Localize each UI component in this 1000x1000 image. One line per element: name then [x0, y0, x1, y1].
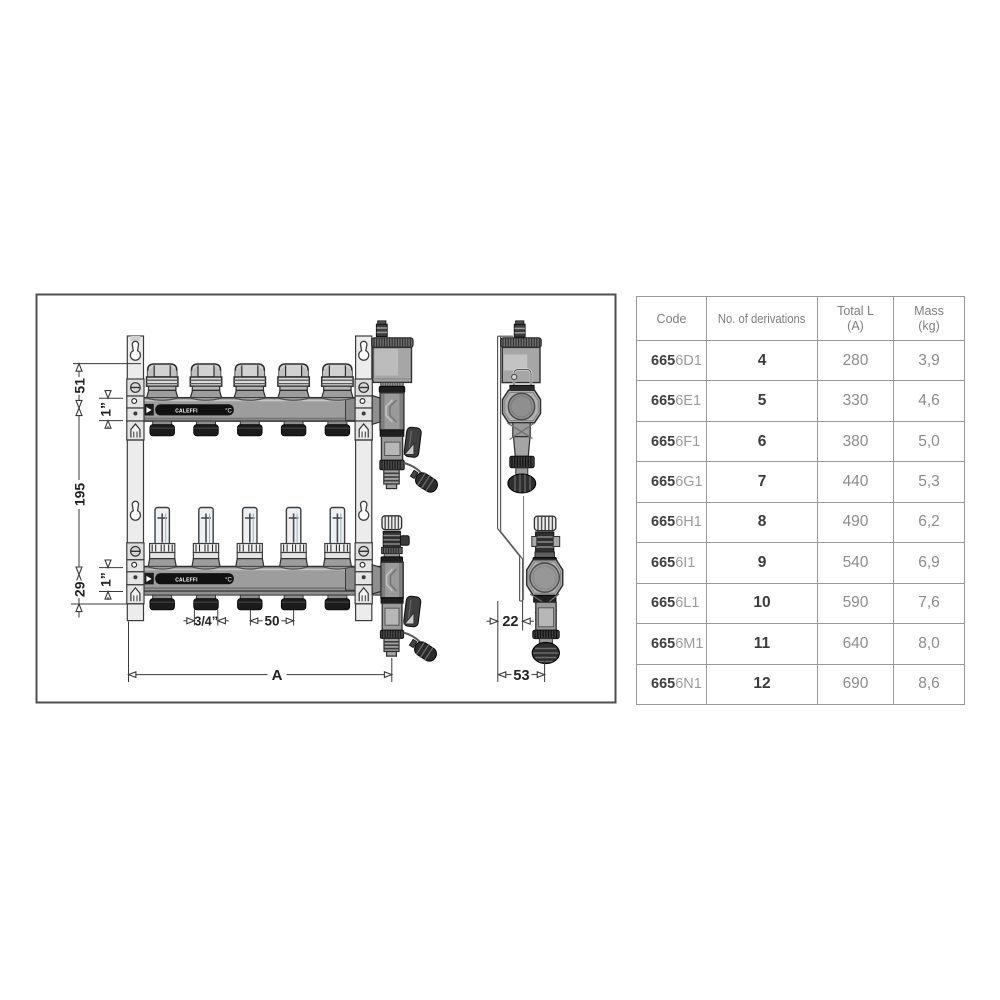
svg-text:1”: 1” [98, 572, 114, 587]
svg-text:195: 195 [72, 483, 88, 507]
svg-text:A: A [272, 667, 283, 684]
svg-text:50: 50 [264, 614, 279, 629]
svg-text:CALEFFI: CALEFFI [175, 409, 198, 415]
svg-text:°C: °C [225, 577, 232, 583]
svg-text:1”: 1” [98, 402, 114, 417]
svg-text:CALEFFI: CALEFFI [175, 578, 198, 584]
svg-text:29: 29 [72, 581, 88, 597]
svg-text:53: 53 [513, 668, 529, 684]
svg-text:51: 51 [72, 378, 88, 394]
svg-text:22: 22 [502, 614, 518, 630]
svg-text:°C: °C [225, 408, 232, 414]
svg-text:3/4”: 3/4” [194, 615, 218, 629]
